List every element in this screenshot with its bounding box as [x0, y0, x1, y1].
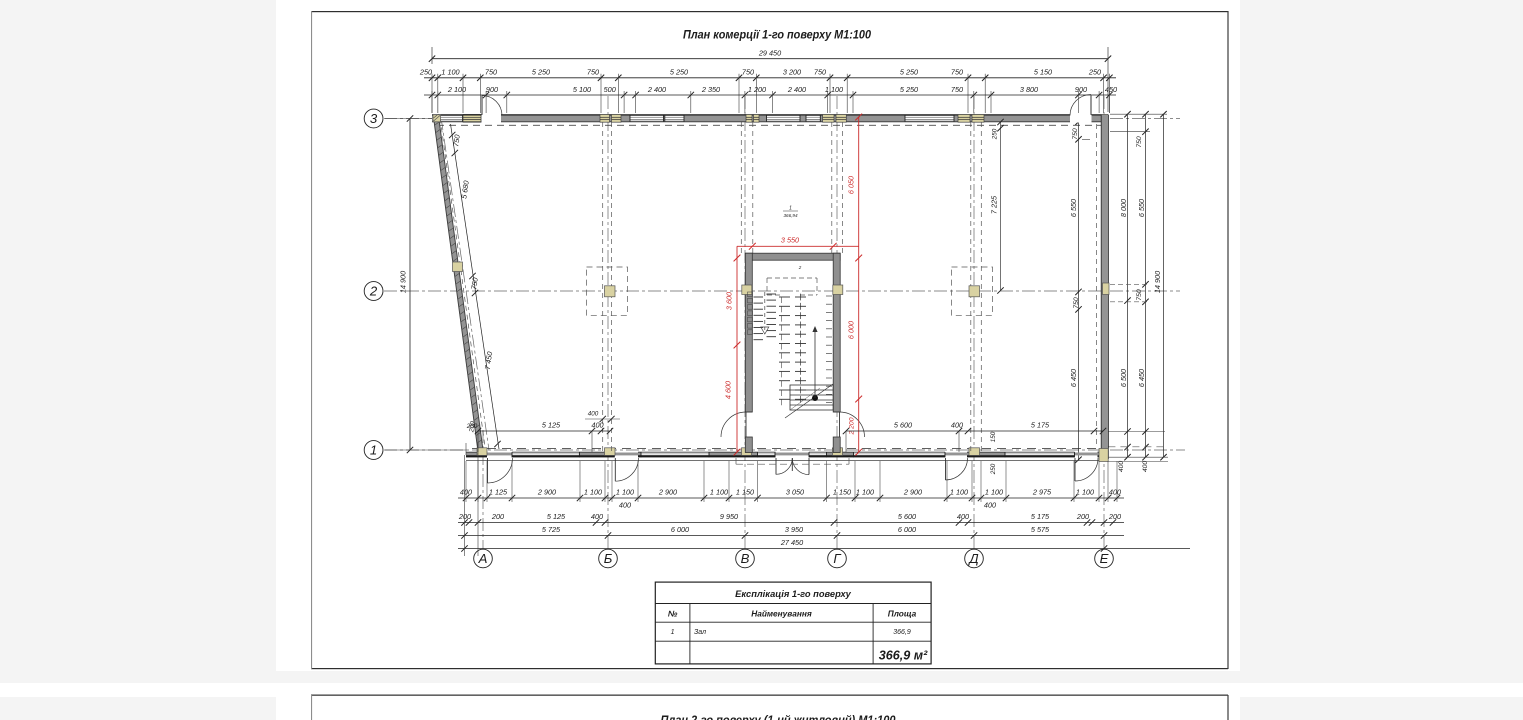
svg-text:900: 900: [1075, 85, 1087, 94]
svg-text:1 150: 1 150: [833, 488, 851, 497]
svg-text:1 100: 1 100: [1076, 488, 1094, 497]
svg-text:366,9: 366,9: [893, 629, 911, 636]
svg-text:27 450: 27 450: [780, 538, 803, 547]
svg-text:5 250: 5 250: [900, 68, 918, 77]
svg-text:150: 150: [990, 431, 997, 442]
svg-text:750: 750: [1136, 289, 1143, 301]
svg-text:5 600: 5 600: [894, 421, 912, 430]
svg-text:8 000: 8 000: [1119, 199, 1128, 217]
svg-text:План комерції 1-го поверху М1: План комерції 1-го поверху М1:100: [683, 28, 871, 42]
svg-text:29 450: 29 450: [758, 49, 781, 58]
svg-text:Е: Е: [1100, 551, 1109, 566]
svg-text:5 250: 5 250: [532, 68, 550, 77]
svg-text:5 150: 5 150: [1034, 68, 1052, 77]
svg-text:750: 750: [742, 68, 754, 77]
svg-text:450: 450: [1105, 85, 1117, 94]
svg-text:5 100: 5 100: [573, 85, 591, 94]
svg-text:Зал: Зал: [694, 629, 706, 636]
svg-text:Г: Г: [833, 551, 841, 566]
svg-text:250: 250: [419, 68, 432, 77]
svg-text:Площа: Площа: [888, 608, 917, 618]
svg-text:Д: Д: [967, 551, 978, 566]
svg-text:200: 200: [491, 512, 504, 521]
svg-text:2 100: 2 100: [447, 85, 466, 94]
svg-text:1 100: 1 100: [985, 488, 1003, 497]
svg-text:750: 750: [951, 68, 963, 77]
svg-text:№: №: [668, 608, 678, 618]
svg-text:1 100: 1 100: [710, 488, 728, 497]
svg-text:366,9 м²: 366,9 м²: [879, 648, 928, 662]
svg-text:1: 1: [370, 443, 377, 458]
svg-text:5 175: 5 175: [1031, 512, 1050, 521]
svg-text:900: 900: [486, 85, 498, 94]
svg-text:7 225: 7 225: [990, 195, 999, 214]
svg-text:9 950: 9 950: [720, 512, 738, 521]
svg-text:План 2-го поверху (1-ий житлов: План 2-го поверху (1-ий житловий) М1:100: [661, 713, 896, 720]
svg-text:1 100: 1 100: [616, 488, 634, 497]
svg-text:1 200: 1 200: [748, 85, 766, 94]
svg-text:6 500: 6 500: [1119, 369, 1128, 387]
svg-text:3: 3: [370, 111, 378, 126]
svg-text:400: 400: [1142, 461, 1149, 473]
svg-text:1 125: 1 125: [489, 488, 508, 497]
svg-text:750: 750: [1072, 128, 1079, 140]
svg-text:Б: Б: [604, 551, 613, 566]
svg-text:14 900: 14 900: [1153, 271, 1162, 293]
svg-text:5 175: 5 175: [1031, 421, 1050, 430]
svg-text:А: А: [478, 551, 488, 566]
svg-text:400: 400: [619, 501, 631, 510]
svg-text:750: 750: [951, 85, 963, 94]
svg-text:6 450: 6 450: [1069, 369, 1078, 387]
svg-text:200: 200: [1108, 512, 1121, 521]
svg-text:3 050: 3 050: [786, 488, 804, 497]
svg-text:6 050: 6 050: [847, 176, 856, 194]
svg-text:200: 200: [466, 423, 478, 430]
svg-text:400: 400: [588, 411, 599, 418]
svg-text:750: 750: [485, 68, 497, 77]
svg-text:2 400: 2 400: [787, 85, 806, 94]
svg-text:3 550: 3 550: [781, 236, 799, 245]
svg-text:Найменування: Найменування: [751, 608, 812, 618]
svg-text:6 000: 6 000: [898, 525, 916, 534]
svg-text:3 200: 3 200: [783, 68, 801, 77]
svg-text:1 100: 1 100: [825, 85, 843, 94]
svg-text:5 600: 5 600: [898, 512, 916, 521]
svg-text:5 250: 5 250: [900, 85, 918, 94]
svg-text:1: 1: [789, 206, 792, 212]
svg-text:2 200: 2 200: [849, 417, 856, 435]
svg-text:2: 2: [369, 284, 378, 299]
svg-text:750: 750: [587, 68, 599, 77]
svg-text:2 900: 2 900: [537, 488, 556, 497]
svg-text:4 600: 4 600: [724, 381, 733, 399]
svg-text:1 100: 1 100: [950, 488, 968, 497]
svg-text:1 100: 1 100: [856, 488, 874, 497]
svg-text:В: В: [741, 551, 750, 566]
svg-text:400: 400: [460, 488, 472, 497]
svg-text:250: 250: [990, 463, 997, 475]
svg-text:3 800: 3 800: [1020, 85, 1038, 94]
svg-text:2 400: 2 400: [647, 85, 666, 94]
svg-text:2 900: 2 900: [658, 488, 677, 497]
svg-text:2 900: 2 900: [903, 488, 922, 497]
svg-text:Експлікація 1-го поверху: Експлікація 1-го поверху: [735, 589, 852, 599]
svg-text:5 575: 5 575: [1031, 525, 1050, 534]
svg-text:400: 400: [591, 512, 603, 521]
svg-text:5 725: 5 725: [542, 525, 561, 534]
svg-text:250: 250: [1088, 68, 1101, 77]
svg-text:250: 250: [992, 128, 999, 140]
svg-text:750: 750: [1073, 297, 1080, 309]
svg-text:5 250: 5 250: [670, 68, 688, 77]
svg-text:750: 750: [469, 277, 480, 290]
svg-text:5 125: 5 125: [547, 512, 566, 521]
svg-text:400: 400: [1109, 488, 1121, 497]
svg-text:3 600: 3 600: [725, 292, 734, 310]
svg-text:2: 2: [798, 265, 802, 270]
svg-text:1: 1: [671, 629, 675, 636]
svg-text:1 100: 1 100: [584, 488, 602, 497]
svg-text:6 450: 6 450: [1137, 369, 1146, 387]
svg-text:1 100: 1 100: [441, 68, 459, 77]
svg-text:5 125: 5 125: [542, 421, 561, 430]
svg-text:6 550: 6 550: [1137, 199, 1146, 217]
svg-text:400: 400: [1118, 461, 1125, 473]
svg-text:14 900: 14 900: [399, 271, 408, 293]
svg-text:400: 400: [591, 421, 603, 430]
svg-text:2 350: 2 350: [701, 85, 720, 94]
svg-text:6 000: 6 000: [847, 321, 856, 339]
svg-text:400: 400: [957, 512, 969, 521]
svg-text:3 950: 3 950: [785, 525, 803, 534]
svg-text:750: 750: [814, 68, 826, 77]
svg-text:6 000: 6 000: [671, 525, 689, 534]
svg-text:1 150: 1 150: [736, 488, 754, 497]
svg-text:400: 400: [984, 501, 996, 510]
svg-text:500: 500: [604, 85, 616, 94]
svg-text:750: 750: [1136, 136, 1143, 148]
svg-text:2 975: 2 975: [1032, 488, 1052, 497]
svg-text:400: 400: [951, 421, 963, 430]
svg-text:6 550: 6 550: [1069, 199, 1078, 217]
svg-text:366,94: 366,94: [783, 213, 797, 218]
svg-text:200: 200: [1076, 512, 1089, 521]
svg-text:750: 750: [451, 134, 462, 147]
